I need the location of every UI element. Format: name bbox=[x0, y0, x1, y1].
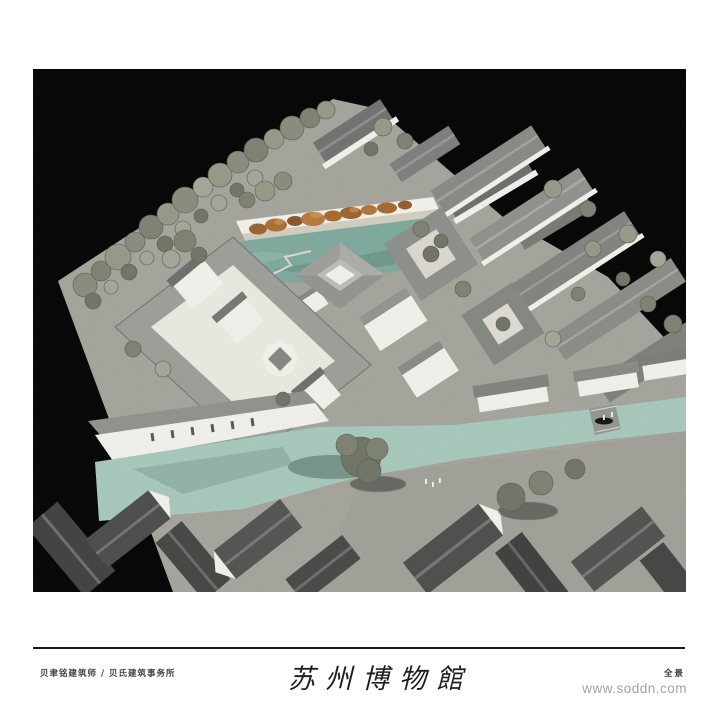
model-photo-illustration bbox=[33, 69, 686, 592]
museum-title-calligraphy: 苏州博物館 bbox=[288, 657, 473, 696]
view-label: 全景 bbox=[664, 667, 685, 679]
model-photo bbox=[33, 69, 686, 592]
presentation-board: 贝聿铭建筑师 / 贝氏建筑事务所 苏州博物館 全景 www.soddn.com bbox=[0, 0, 709, 709]
photo-grain-overlay bbox=[33, 69, 686, 592]
watermark-url: www.soddn.com bbox=[582, 681, 687, 696]
divider-line bbox=[33, 647, 685, 649]
architect-credit: 贝聿铭建筑师 / 贝氏建筑事务所 bbox=[40, 667, 176, 679]
